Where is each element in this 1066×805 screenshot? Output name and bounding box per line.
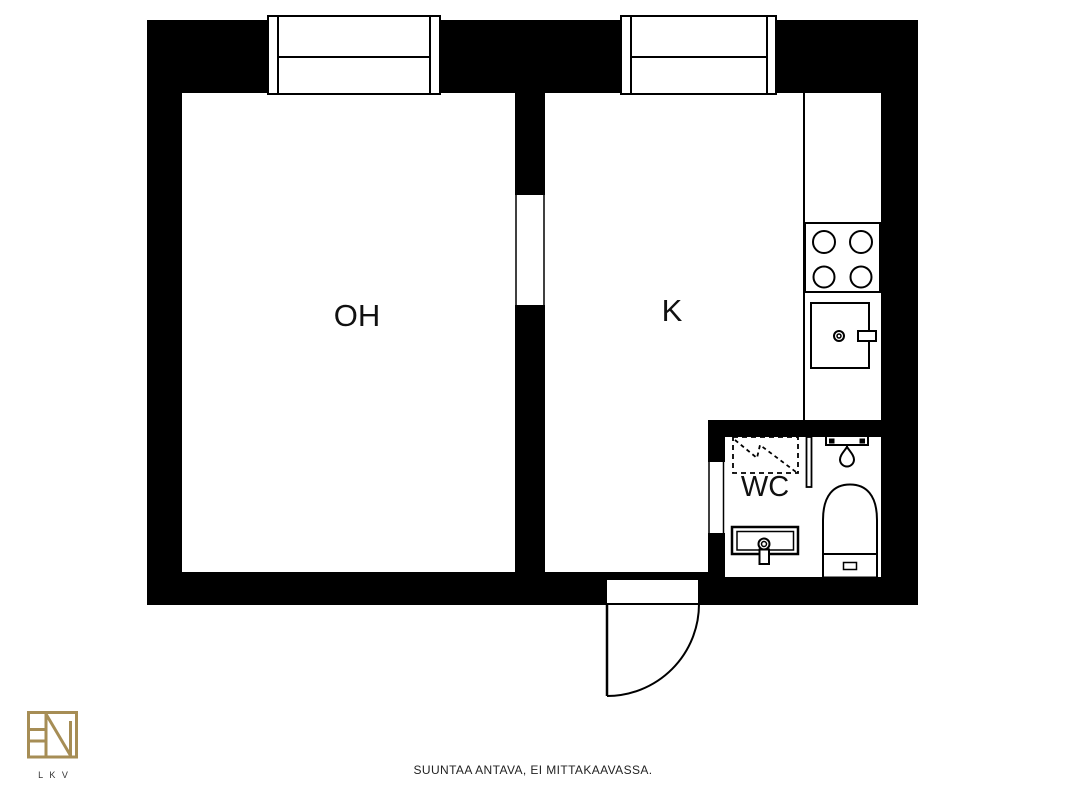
room-label-oh: OH — [334, 298, 381, 333]
kitchen-sink-icon — [811, 303, 876, 368]
floor-plan-page: OH K WC L K V SUUNTAA ANTAVA, EI MITTAKA… — [0, 0, 1066, 800]
basin-faucet-icon — [760, 550, 770, 565]
shower-partition — [807, 437, 812, 487]
toilet-icon — [823, 485, 877, 578]
entrance-opening — [607, 578, 698, 605]
wall-left — [147, 20, 182, 605]
kitchen-fixtures — [804, 93, 880, 420]
flush-button — [844, 563, 857, 570]
lkv-logo-icon — [26, 710, 80, 760]
disclaimer-text: SUUNTAA ANTAVA, EI MITTAKAAVASSA. — [0, 763, 1066, 777]
room-label-k: K — [662, 293, 683, 328]
floor-plan: OH K WC — [0, 0, 1066, 800]
wall-wc-top — [708, 420, 883, 437]
wall-top — [147, 20, 918, 93]
wall-wc-left-lower — [708, 533, 725, 577]
window-icon — [621, 16, 776, 94]
room-label-wc: WC — [741, 471, 789, 503]
wall-wc-left-upper — [708, 437, 725, 462]
stove-icon — [805, 223, 880, 292]
toilet-bowl — [823, 485, 877, 555]
wall-divider-upper — [515, 93, 545, 195]
room-opening-lines — [516, 195, 724, 533]
window-icon — [268, 16, 440, 94]
wall-divider-lower — [515, 305, 545, 572]
wall-right — [881, 20, 918, 605]
door-swing-arc — [607, 604, 699, 696]
faucet-icon — [858, 331, 876, 341]
